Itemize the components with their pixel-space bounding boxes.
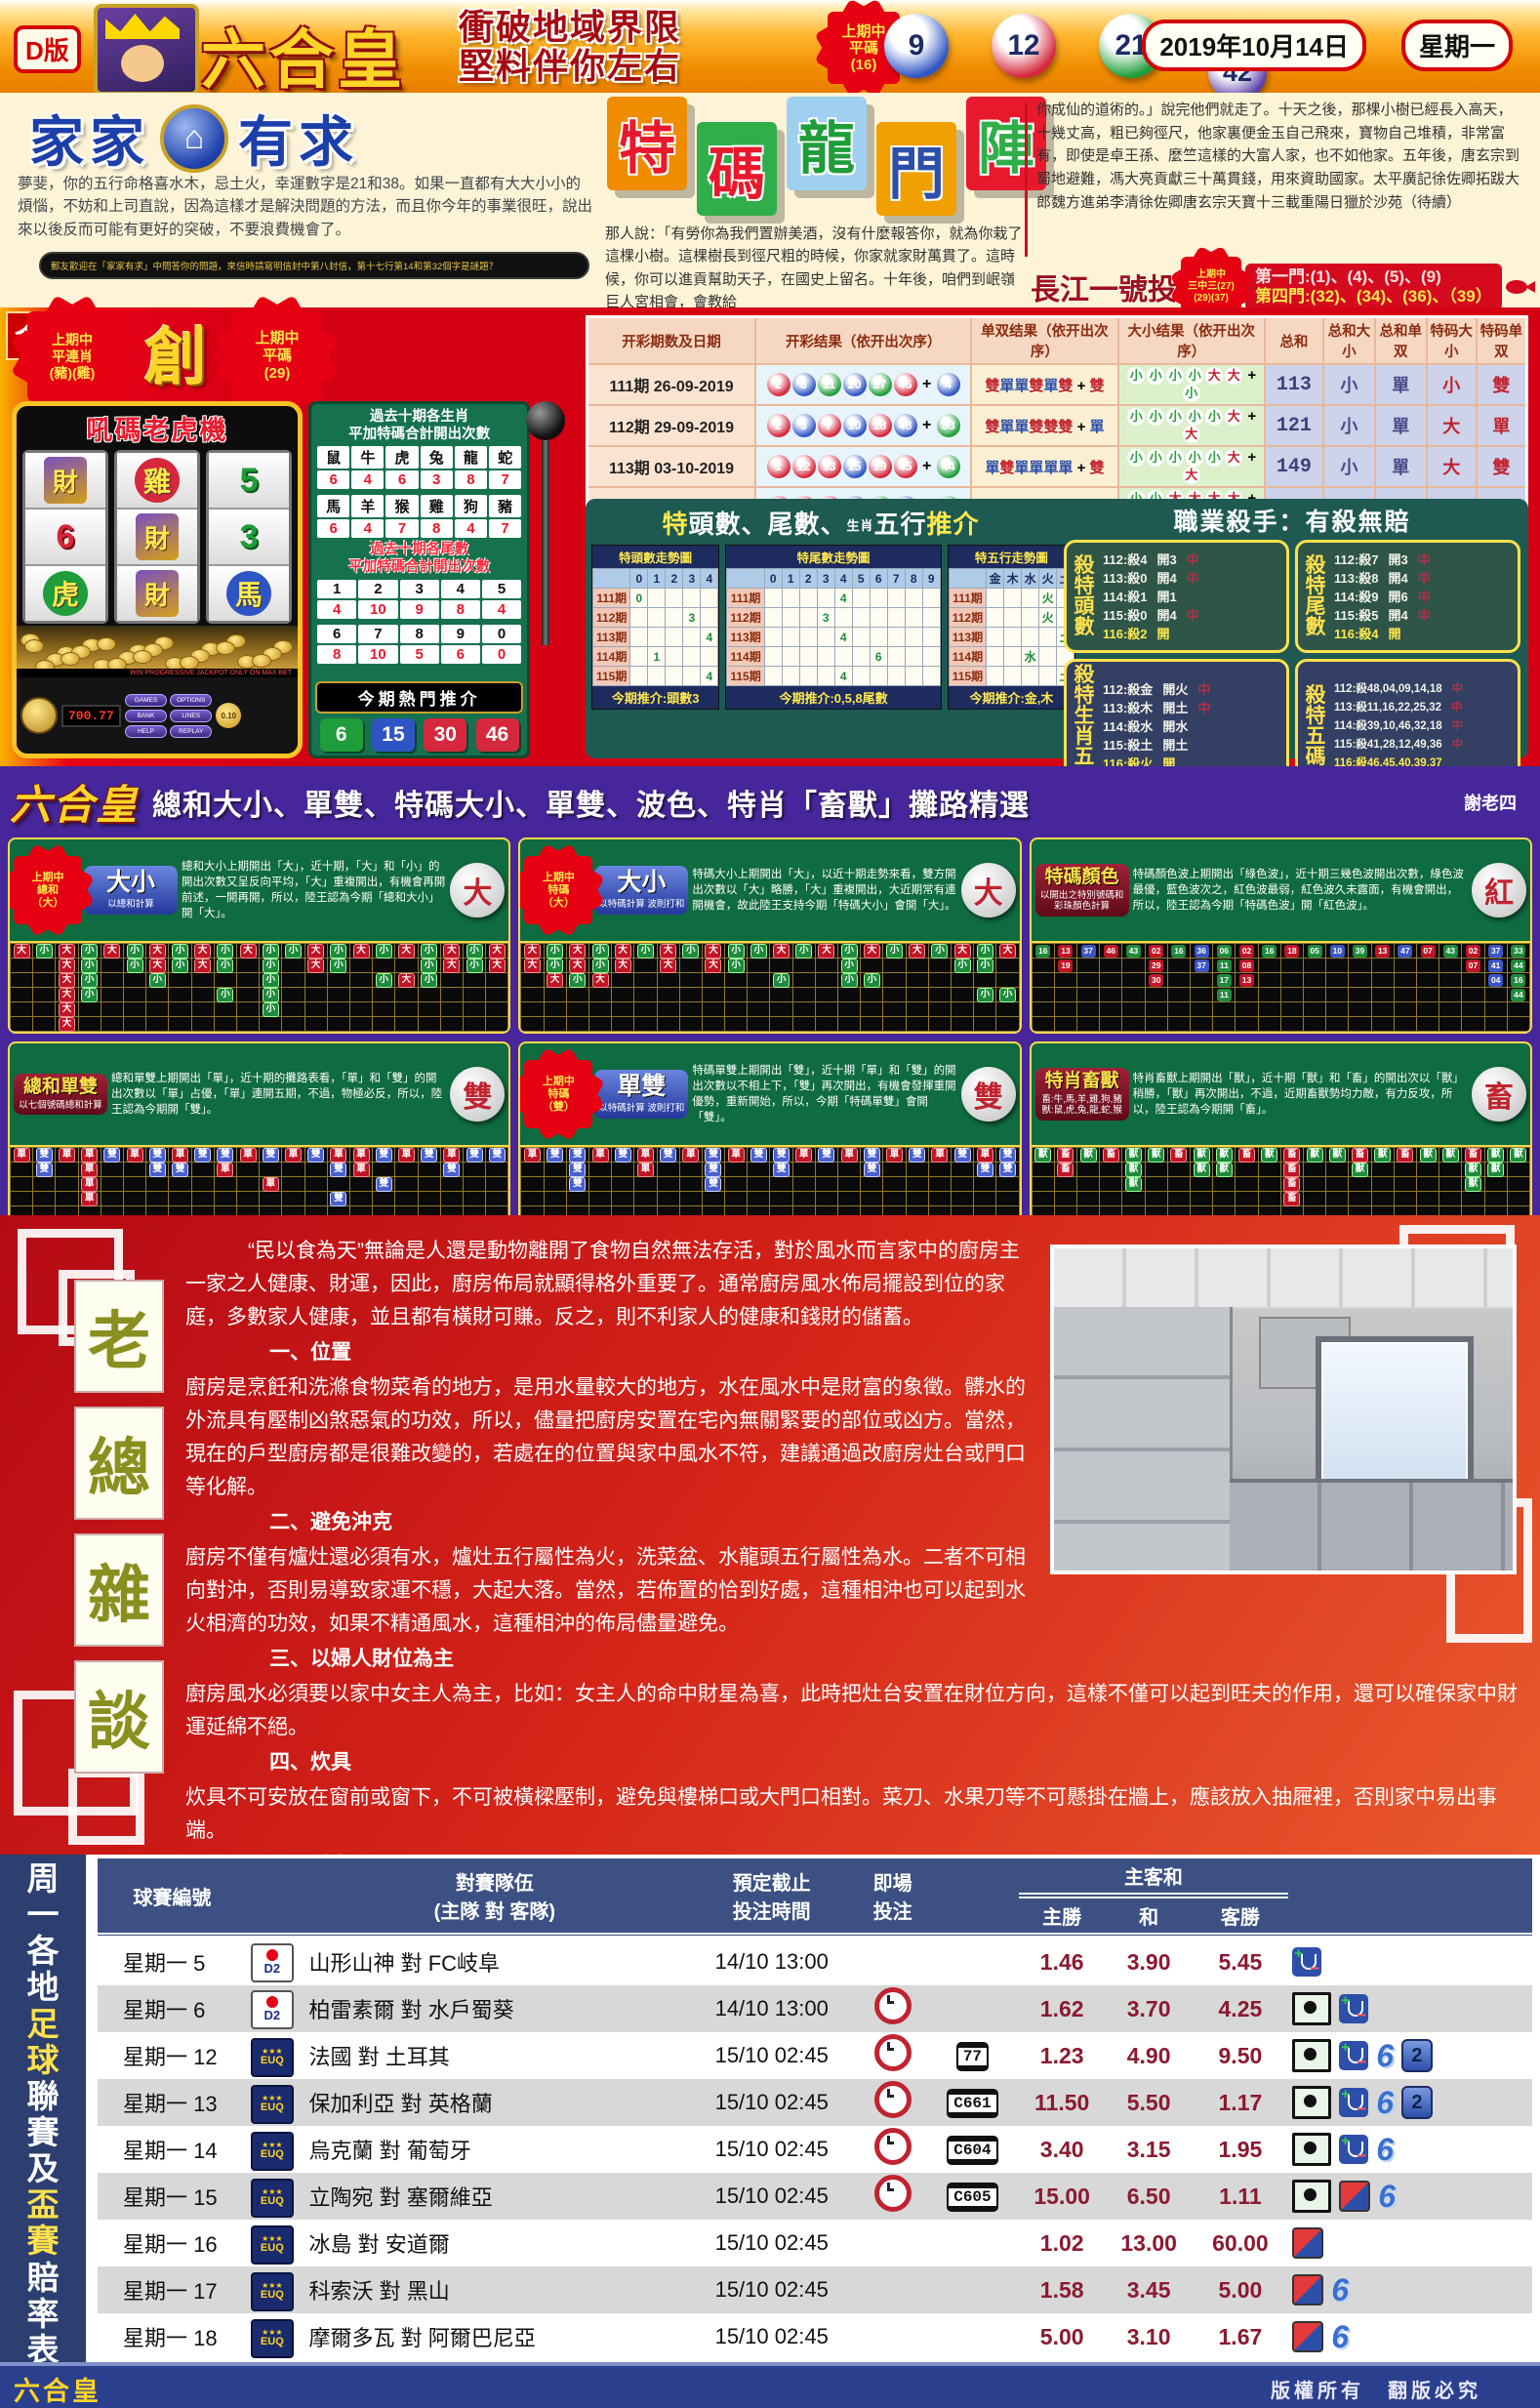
odds-header-cell [926, 1858, 1019, 1936]
odds-header-cell: 和 [1106, 1896, 1193, 1936]
road-cell: 獸 [1213, 1163, 1235, 1176]
trend-cell [683, 647, 701, 667]
panel-answer-ball: 紅 [1472, 863, 1526, 918]
road-cell [11, 1163, 32, 1176]
road-cell [929, 1017, 951, 1031]
road-cell [1349, 1192, 1370, 1205]
hit-mark: 中 [1187, 551, 1199, 569]
channel-cell [926, 2313, 1019, 2360]
killer-label: 殺特頭數 [1072, 546, 1097, 647]
trend-cell [887, 608, 905, 628]
time-cell: 15/10 02:45 [684, 2032, 859, 2079]
road-cell [1417, 988, 1439, 1001]
road-tile: 獸 [1125, 1163, 1142, 1177]
road-cell [1417, 1017, 1439, 1031]
road-tile: 雙 [660, 1148, 676, 1163]
road-tile: 大 [524, 959, 541, 973]
clock-icon [874, 1987, 912, 2024]
road-cell: 小 [79, 959, 101, 972]
stat-value: 0 [482, 645, 521, 664]
road-tile: 小 [569, 973, 586, 988]
total-goals-icon: 6 [1376, 2085, 1394, 2121]
trend-cell [782, 589, 799, 608]
road-tile: 大 [999, 944, 1016, 959]
road-cell [838, 1163, 860, 1176]
road-cell: 獸 [1122, 1163, 1144, 1176]
slot-button: REPLAY [170, 725, 212, 738]
road-number-tile: 30 [1149, 974, 1163, 987]
trend-cell: 水 [1022, 647, 1039, 667]
result-char: 雙 [999, 460, 1014, 476]
stat-key: 6 [317, 625, 356, 643]
stat-key: 3 [400, 580, 439, 598]
road-cell [441, 988, 463, 1001]
total-goals-icon: 6 [1331, 2319, 1349, 2355]
road-number-tile: 10 [1330, 945, 1345, 958]
road-cell: 11 [1213, 988, 1235, 1001]
road-cell [464, 1002, 485, 1016]
road-cell [282, 973, 304, 987]
road-cell [464, 1017, 485, 1031]
road-cell: 大 [996, 944, 1018, 958]
road-tile: 雙 [307, 1148, 324, 1163]
special-oddeven-cell: 雙 [1477, 446, 1527, 487]
away-odds: 4.25 [1193, 1985, 1289, 2032]
road-cell: 獸 [1304, 1148, 1325, 1162]
stats-panel: 過去十期各生肖 平加特碼合計開出次數 鼠牛虎兔龍蛇646387 馬羊猴雞狗豬64… [308, 401, 530, 758]
road-cell [1100, 1163, 1121, 1176]
killer-line: 113:殺0開4中 [1103, 569, 1281, 588]
road-number-tile: 47 [1398, 945, 1412, 958]
odds-row: 星期一 18★★★EUQ摩爾多瓦 對 阿爾巴尼亞15/10 02:455.003… [98, 2313, 1532, 2360]
starburst-line: 上期中 [543, 872, 575, 884]
road-cell: 大 [192, 944, 214, 958]
trend-cell: 火 [1039, 608, 1057, 628]
trend-cell [905, 628, 922, 647]
road-cell: 小 [838, 959, 860, 972]
road-tile: 小 [728, 959, 745, 973]
league-cell: ★★★EUQ [247, 2266, 305, 2313]
result-char: 單 [1043, 378, 1058, 394]
road-tile: 大 [353, 944, 370, 959]
killer-line: 115:殺5開4中 [1334, 606, 1513, 625]
road-cell [770, 1002, 791, 1016]
trend-row: 113期4 [727, 628, 940, 647]
road-cell [703, 988, 724, 1001]
road-cell: 小 [770, 973, 791, 987]
road-cell: 雙 [952, 1148, 973, 1162]
article-title-char: 總 [74, 1407, 164, 1520]
trend-cell [887, 667, 905, 686]
road-cell: 07 [1462, 959, 1483, 972]
road-tile: 雙 [376, 1177, 392, 1192]
teams-cell: 立陶宛 對 塞爾維亞 [305, 2173, 685, 2220]
road-cell [1033, 1177, 1054, 1191]
road-tile: 雙 [466, 1148, 483, 1163]
trend-row: 114期1 [593, 647, 718, 667]
road-tile: 獸 [1510, 1148, 1526, 1163]
stat-key: 兔 [421, 446, 453, 469]
starburst-line: 上期中 [1196, 269, 1226, 281]
road-cell [1417, 959, 1439, 972]
trend-cell [922, 628, 940, 647]
road-cell: 單 [56, 1148, 77, 1162]
reel-cell: 雞 [117, 453, 197, 510]
teams-cell: 柏雷素爾 對 水戶蜀葵 [305, 1985, 685, 2032]
road-cell [1508, 1017, 1529, 1031]
road-cell [1485, 1017, 1507, 1031]
road-cell: 大 [612, 959, 633, 972]
road-cell [521, 1192, 543, 1205]
road-cell [1191, 1192, 1212, 1205]
result-ball: 2 [767, 414, 790, 437]
road-cell [1349, 959, 1370, 972]
trend-tip: 今期推介:0,5,8尾數 [726, 686, 940, 709]
road-cell: 獸 [1191, 1163, 1212, 1176]
road-cell [1485, 988, 1507, 1001]
correct-score-icon [1292, 2039, 1331, 2072]
result-ball: 15 [843, 455, 867, 478]
away-odds: 1.67 [1193, 2313, 1289, 2360]
trend-cell [817, 628, 834, 647]
road-cell [1372, 988, 1394, 1001]
road-number-tile: 33 [1511, 945, 1525, 958]
road-tile: 大 [149, 944, 166, 959]
road-tile: 大 [398, 944, 415, 959]
road-tile: 大 [909, 944, 925, 959]
road-cell: 雙 [612, 1148, 633, 1162]
trend-cell [782, 608, 799, 628]
road-cell [215, 1177, 236, 1191]
tv-channel-badge: 77 [956, 2042, 989, 2071]
stat-value: 10 [358, 645, 397, 664]
road-number-tile: 43 [1443, 945, 1458, 958]
sidebar-char: 一 [27, 1898, 60, 1931]
road-cell [1304, 1177, 1325, 1191]
odds-table: 球賽編號對賽隊伍(主隊 對 客隊)預定截止投注時間即場投注主客和主勝和客勝星期一… [98, 1858, 1532, 2360]
panel-answer-ball: 雙 [961, 1067, 1016, 1122]
road-tile: 大 [954, 944, 971, 959]
road-panel: 上期中總和（大）大小以總和計算總和大小上期開出「大」，近十期，「大」和「小」的開… [8, 837, 510, 1034]
killer-label: 殺特尾數 [1303, 546, 1328, 647]
league-badge: ★★★EUQ [251, 2319, 294, 2358]
result-char: 雙 [985, 378, 999, 394]
road-tile: 獸 [1034, 1148, 1051, 1163]
league-cell: D2 [247, 1936, 305, 1985]
road-cell [1439, 1177, 1461, 1191]
road-cell: 大 [192, 959, 214, 972]
road-cell: 畜 [1281, 1192, 1303, 1205]
live-cell [859, 2126, 926, 2173]
road-tile: 小 [172, 959, 188, 973]
trend-cell [782, 647, 799, 667]
road-cell [350, 988, 372, 1001]
road-cell: 小 [680, 944, 702, 958]
slot-buttons: GAMESOPTIONSBANKLINESHELPREPLAY [125, 694, 213, 738]
road-cell [996, 1192, 1018, 1205]
road-cell: 小 [419, 944, 440, 958]
footer-logo: 六合皇 [0, 2370, 101, 2408]
road-cell: 獸 [1349, 1163, 1370, 1176]
killer-panel: 職業殺手：有殺無賠 殺特頭數112:殺4開3中113:殺0開4中114:殺1開1… [1056, 499, 1528, 758]
starburst-line: 特碼 [547, 1088, 569, 1101]
road-cell [770, 1192, 791, 1205]
road-cell: 41 [1485, 959, 1507, 972]
road-tile: 獸 [1420, 1148, 1437, 1163]
masthead-logo: 六合皇 [201, 8, 406, 102]
road-number-tile: 05 [1308, 945, 1322, 958]
handicap-icon: +− [1339, 2135, 1368, 2164]
road-number-tile: 36 [1195, 945, 1209, 958]
sidebar-char: 賠 [27, 2262, 60, 2294]
trend-col: 0 [630, 569, 648, 589]
road-cell [793, 1163, 815, 1176]
draw-odds: 3.70 [1106, 1985, 1193, 2032]
road-tile: 雙 [954, 1148, 971, 1163]
hit-mark: 中 [1452, 717, 1464, 736]
balls-cell: 2311202746 + 4 [755, 364, 971, 405]
special-oddeven-cell: 單 [1477, 405, 1527, 446]
road-tile: 單 [637, 1148, 654, 1163]
stat-value: 7 [489, 519, 521, 538]
trend-row-label: 112期 [593, 608, 630, 628]
result-ball: 48 [894, 414, 917, 437]
road-cell: 小 [838, 944, 860, 958]
total-goals-icon: 6 [1331, 2272, 1349, 2308]
road-cell [816, 973, 837, 987]
road-tile: 小 [376, 973, 392, 988]
road-cell: 雙 [464, 1148, 485, 1162]
road-cell [1417, 973, 1439, 987]
road-cell [1326, 959, 1348, 972]
road-cell [441, 1192, 463, 1205]
corner-kick-icon [1292, 2321, 1323, 2352]
road-cell [395, 1177, 417, 1191]
road-cell: 小 [545, 944, 566, 958]
panel-badge: 總和單雙以七個號碼總和計算 [14, 1074, 107, 1116]
road-cell [328, 1177, 349, 1191]
road-cell: 小 [260, 973, 281, 987]
match-number: 星期一 15 [98, 2173, 247, 2220]
reel-cell: 虎 [25, 566, 105, 621]
extra-bets-cell: +−6 [1288, 2126, 1532, 2173]
road-tile: 雙 [489, 1148, 506, 1163]
road-tile: 小 [682, 944, 699, 959]
road-cell: 大 [56, 988, 77, 1001]
panel-badge: 特肖畜獸畜:牛,馬,羊,雞,狗,豬 獸:鼠,虎,兔,龍,蛇,猴 [1035, 1068, 1129, 1122]
away-odds: 1.17 [1193, 2079, 1289, 2126]
trend-cell [764, 628, 782, 647]
road-cell [1326, 1192, 1348, 1205]
road-cell [589, 1017, 611, 1031]
road-cell [929, 1177, 951, 1191]
panel-starburst: 上期中特碼（雙） [524, 1060, 592, 1128]
result-char: 單 [1014, 460, 1029, 476]
trend-cell [630, 608, 648, 628]
stat-value: 7 [489, 470, 521, 489]
result-ball: 12 [792, 455, 816, 478]
trend-cell [852, 667, 870, 686]
road-cell: 單 [793, 1148, 815, 1162]
road-cell [441, 1177, 463, 1191]
special-oddeven-cell: 雙 [1477, 364, 1527, 405]
road-cell [861, 1002, 882, 1016]
result-char: 單 [1014, 378, 1029, 394]
teams-cell: 冰島 對 安道爾 [305, 2220, 685, 2266]
road-cell [1236, 1017, 1257, 1031]
road-cell: 46 [1100, 944, 1121, 958]
road-cell [305, 973, 327, 987]
trend-cell [648, 628, 666, 647]
trend-cell [799, 667, 817, 686]
road-cell [658, 1017, 679, 1031]
road-cell: 雙 [373, 1177, 394, 1191]
kitchen-photo [1050, 1245, 1517, 1574]
trend-cell: 4 [834, 589, 852, 608]
panel-badge: 單雙以特碼計算 波則打和 [594, 1070, 688, 1118]
road-cell [124, 1002, 145, 1016]
killer-subpanel: 殺特尾數112:殺7開3中113:殺8開4中114:殺9開6中115:殺5開4中… [1295, 540, 1520, 653]
hit-mark: 中 [1418, 551, 1431, 569]
main-red-zone: 食 上期中平連肖(豬)(雞) 創 上期中平碼(29) 吼碼老虎機 財6虎雞財財5… [0, 307, 1540, 766]
road-cell [486, 1192, 507, 1205]
road-cell [33, 1017, 55, 1031]
road-cell [748, 959, 769, 972]
road-cell: 大 [146, 944, 168, 958]
road-tile: 大 [149, 959, 166, 973]
road-cell [996, 1177, 1018, 1191]
starburst-line: 平連肖 [52, 348, 93, 365]
road-cell [929, 959, 951, 972]
league-cell: ★★★EUQ [247, 2173, 305, 2220]
result-char: 小 [1166, 408, 1184, 426]
road-number-tile: 37 [1488, 945, 1503, 958]
starburst-line: 平碼 [849, 40, 878, 57]
road-cell [1259, 959, 1280, 972]
trend-tip: 今期推介:頭數3 [592, 686, 718, 709]
road-cell [124, 988, 145, 1001]
road-tile: 雙 [103, 1148, 120, 1163]
live-cell [859, 2220, 926, 2266]
road-cell [861, 1017, 882, 1031]
road-cell [419, 988, 440, 1001]
trend-col: 6 [870, 569, 887, 589]
road-cell [11, 1177, 32, 1191]
stat-value: 6 [441, 645, 480, 664]
league-cell: ★★★EUQ [247, 2220, 305, 2266]
road-cell [1236, 1177, 1257, 1191]
road-cell [1033, 1163, 1054, 1176]
result-char: 大 [1225, 408, 1242, 426]
road-cell [680, 1192, 702, 1205]
road-cell [56, 1177, 77, 1191]
road-tile: 畜 [1352, 1148, 1368, 1163]
reel-cell: 3 [209, 510, 289, 566]
road-tile: 小 [954, 959, 971, 973]
time-cell: 15/10 02:45 [684, 2126, 859, 2173]
panel-analysis-text: 特肖畜獸上期開出「獸」，近十期「獸」和「畜」的開出次以「獸」稍勝，「獸」再次開出… [1133, 1071, 1468, 1118]
road-cell: 小 [215, 959, 236, 972]
result-char: 小 [1166, 449, 1184, 467]
road-tile: 畜 [1283, 1148, 1300, 1163]
road-tile: 小 [592, 944, 609, 959]
coin-icon [97, 637, 116, 651]
road-cell: 小 [974, 988, 995, 1001]
road-cell: 獸 [1485, 1163, 1507, 1176]
bigsmall-cell: 小小小小大大 + 小 [1118, 364, 1265, 405]
result-char: 小 [1147, 408, 1164, 426]
results-header-row: 开彩期数及日期开彩结果（依开出次序）单双结果（依开出次序）大小结果（依开出次序）… [588, 317, 1527, 365]
road-cell [634, 1177, 656, 1191]
road-cell [11, 1192, 32, 1205]
road-cell [929, 1163, 951, 1176]
road-cell [237, 959, 259, 972]
road-cell [169, 988, 190, 1001]
tail-count-table: 67890810560 [317, 625, 521, 664]
road-tile: 大 [59, 959, 75, 973]
result-char: 小 [1183, 385, 1200, 402]
hit-mark: 中 [1418, 606, 1431, 625]
live-cell [859, 1936, 926, 1985]
road-tile: 單 [795, 1148, 812, 1163]
road-cell [1372, 1177, 1394, 1191]
road-cell: 大 [589, 973, 611, 987]
correct-score-icon [1292, 2086, 1331, 2119]
road-cell: 小 [793, 944, 815, 958]
match-number: 星期一 18 [98, 2313, 247, 2360]
road-cell [169, 1017, 190, 1031]
trend-col-header: 01234 [593, 569, 718, 589]
road-cell [419, 1017, 440, 1031]
road-cell: 單 [634, 1163, 656, 1176]
road-cell [680, 1002, 702, 1016]
trend-row: 111期0 [593, 589, 718, 608]
road-cell [146, 1017, 168, 1031]
road-cell: 畜 [1100, 1148, 1121, 1162]
road-tile: 雙 [36, 1148, 53, 1163]
road-cell [612, 1192, 633, 1205]
road-tile: 雙 [864, 1163, 880, 1177]
plus-sign: + [918, 417, 936, 433]
trend-title-segment: 生肖 [846, 520, 873, 532]
road-cell [883, 973, 905, 987]
result-ball: 10 [843, 414, 867, 437]
league-badge: ★★★EUQ [251, 2132, 294, 2171]
road-cell [1055, 988, 1076, 1001]
road-cell [395, 1192, 417, 1205]
road-cell [907, 988, 928, 1001]
road-cell [589, 1002, 611, 1016]
road-tile: 獸 [1148, 1148, 1164, 1163]
road-cell: 18 [1281, 944, 1303, 958]
road-tile: 獸 [1465, 1163, 1481, 1177]
reel-symbol: 3 [240, 518, 259, 556]
road-cell [1033, 988, 1054, 1001]
handicap-icon: +− [1339, 2041, 1368, 2070]
road-cell [1146, 1177, 1167, 1191]
trend-grid: 01234111期0112期3113期4114期1115期4 [592, 568, 718, 686]
result-char: 小 [1186, 367, 1203, 385]
road-cell [748, 1163, 769, 1176]
special-bigsmall-cell: 大 [1427, 446, 1477, 487]
road-cell: 大 [907, 944, 928, 958]
trend-title: 特頭數、尾數、生肖五行推介 [591, 505, 1050, 541]
road-tile: 小 [466, 944, 483, 959]
league-dot-icon [266, 1996, 278, 2008]
road-cell [1281, 1017, 1303, 1031]
road-cell [486, 1163, 507, 1176]
road-cell [612, 1163, 633, 1176]
